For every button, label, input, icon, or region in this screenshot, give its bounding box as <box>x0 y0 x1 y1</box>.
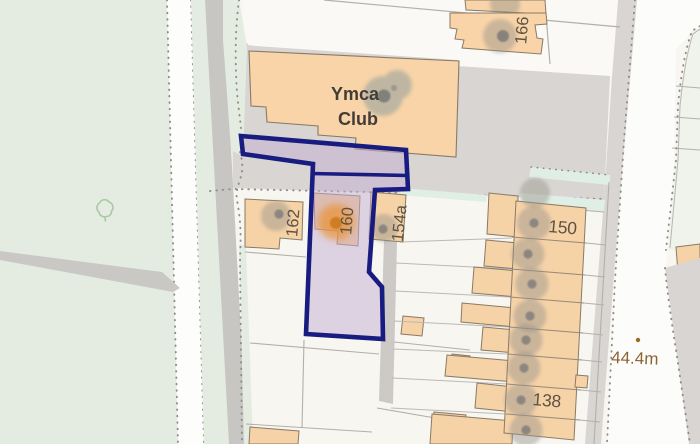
svg-text:44.4m: 44.4m <box>611 348 659 369</box>
svg-text:Ymca: Ymca <box>331 84 380 104</box>
svg-text:166: 166 <box>512 16 532 45</box>
svg-text:162: 162 <box>283 208 303 237</box>
svg-text:Club: Club <box>338 109 378 129</box>
svg-text:160: 160 <box>337 206 357 235</box>
svg-text:150: 150 <box>548 216 578 238</box>
svg-text:138: 138 <box>532 389 562 411</box>
